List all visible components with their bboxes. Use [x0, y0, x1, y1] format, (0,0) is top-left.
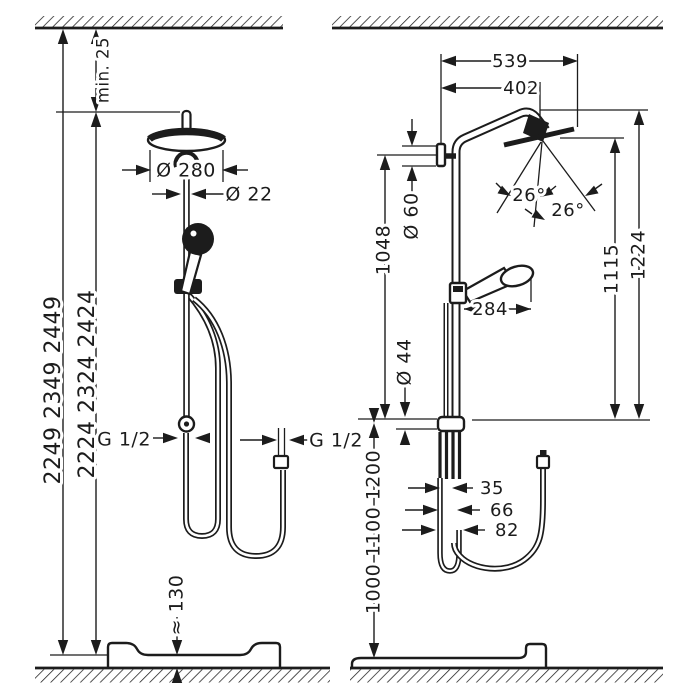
dim-spray-angle-right-label: 26° — [551, 200, 584, 221]
dim-hose-connection-label: G 1/2 — [309, 430, 363, 452]
ceiling-hatch-left — [35, 16, 283, 28]
shower-tray-side — [352, 644, 546, 668]
dim-total-height-outer-label: 2249 2349 2449 — [41, 296, 66, 485]
dim-spray-angle-left-label: 26° — [512, 185, 545, 206]
side-view: 539 402 Ø 60 1048 26° 26° 1115 1224 284 … — [332, 16, 663, 683]
supply-elbow — [179, 417, 194, 432]
dim-escutcheon-diameter-label: Ø 60 — [401, 192, 423, 239]
riser-and-arm-side — [456, 112, 546, 418]
dim-handshower-reach-label: 284 — [472, 299, 508, 320]
dim-supply-connection-label: G 1/2 — [97, 429, 151, 451]
hose-end-fitting-front — [274, 428, 288, 468]
dim-width-outer-label: 82 — [495, 520, 519, 541]
dim-valve-diameter-label: Ø 44 — [394, 338, 416, 385]
hand-shower-hose-front — [186, 294, 283, 556]
hand-shower-front — [174, 223, 214, 294]
dim-head-height-inner-label: 1115 — [601, 244, 623, 294]
dim-depth-total-label: 539 — [492, 51, 528, 72]
front-view: 2249 2349 2449 2224 2324 2424 min. 25 Ø … — [35, 16, 363, 683]
diagram-canvas: 2249 2349 2449 2224 2324 2424 min. 25 Ø … — [0, 0, 700, 700]
dim-head-diameter-label: Ø 280 — [156, 160, 216, 182]
dim-bracket-to-valve-label: 1048 — [373, 225, 395, 275]
ceiling-hatch-right — [332, 16, 663, 28]
floor-hatch-right — [350, 668, 663, 683]
spray-angle-fan — [496, 141, 602, 227]
dim-width-inner-label: 35 — [480, 478, 504, 499]
dim-valve-heights-label: 1000 1100 1200 — [363, 450, 385, 614]
technical-drawing: 2249 2349 2449 2224 2324 2424 min. 25 Ø … — [0, 0, 700, 700]
dim-pipe-diameter-label: Ø 22 — [225, 184, 272, 206]
dim-depth-arm-label: 402 — [503, 78, 539, 99]
dim-ceiling-clearance-label: min. 25 — [94, 37, 113, 103]
dim-width-mid-label: 66 — [490, 500, 514, 521]
dim-head-height-outer-label: 1224 — [628, 230, 650, 280]
floor-hatch-left — [35, 668, 330, 683]
shower-tray-front — [108, 643, 280, 668]
dim-tray-height-label: ≈ 130 — [166, 575, 188, 636]
